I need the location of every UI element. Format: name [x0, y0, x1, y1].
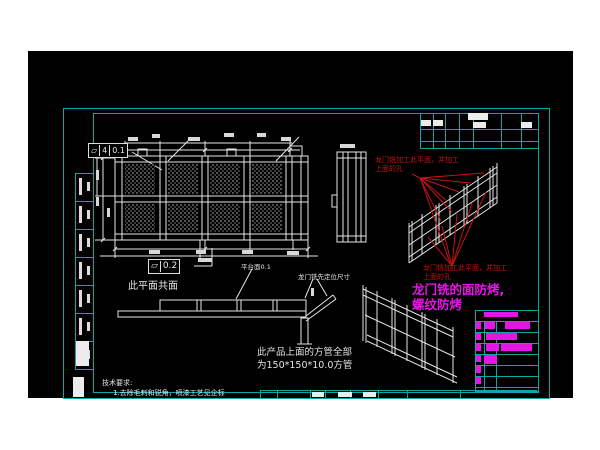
- tech-req-item: 1.去除毛刺和锐角，喷漆工艺见企标: [113, 388, 225, 398]
- platform-note: 平台面0.1: [241, 261, 271, 271]
- square-tube-note: 此产品上面的方管全部 为150*150*10.0方管: [257, 346, 352, 372]
- linework-svg: [0, 0, 600, 450]
- fcf-flatness-coplanar: ▱0.2: [148, 259, 180, 274]
- square-tube-note-line2: 为150*150*10.0方管: [257, 359, 352, 372]
- red-note-line2: 上面的孔: [375, 165, 459, 174]
- cad-drawing-page: ▱40.1 ▱0.2 此平面共面 平台面0.1 龙门铣先定位尺寸 此产品上面的方…: [0, 0, 600, 450]
- red-note-line2: 上面的孔: [423, 273, 507, 282]
- tech-req-title: 技术要求:: [102, 378, 132, 388]
- red-note-line1: 龙门铣加工此平面，并加工: [423, 264, 507, 273]
- square-tube-note-line1: 此产品上面的方管全部: [257, 346, 352, 359]
- flatness-symbol-icon: ▱: [149, 261, 161, 272]
- magenta-antibake-note: 龙门铣的面防烤, 螺纹防烤: [412, 282, 504, 312]
- red-machining-note-bottom: 龙门铣加工此平面，并加工 上面的孔: [423, 264, 507, 282]
- red-note-line1: 龙门铣加工此平面，并加工: [375, 156, 459, 165]
- locating-note: 龙门铣先定位尺寸: [298, 271, 350, 281]
- fcf-value: 0.1: [110, 145, 127, 156]
- coplanar-note: 此平面共面: [128, 277, 178, 292]
- red-machining-note-top: 龙门铣加工此平面，并加工 上面的孔: [375, 156, 459, 174]
- fcf-value: 0.2: [161, 261, 179, 272]
- fcf-flatness-top: ▱40.1: [88, 143, 128, 158]
- magenta-note-line1: 龙门铣的面防烤,: [412, 282, 504, 297]
- magenta-note-line2: 螺纹防烤: [412, 297, 504, 312]
- flatness-symbol-icon: ▱: [89, 145, 100, 156]
- fcf-zones: 4: [100, 145, 110, 156]
